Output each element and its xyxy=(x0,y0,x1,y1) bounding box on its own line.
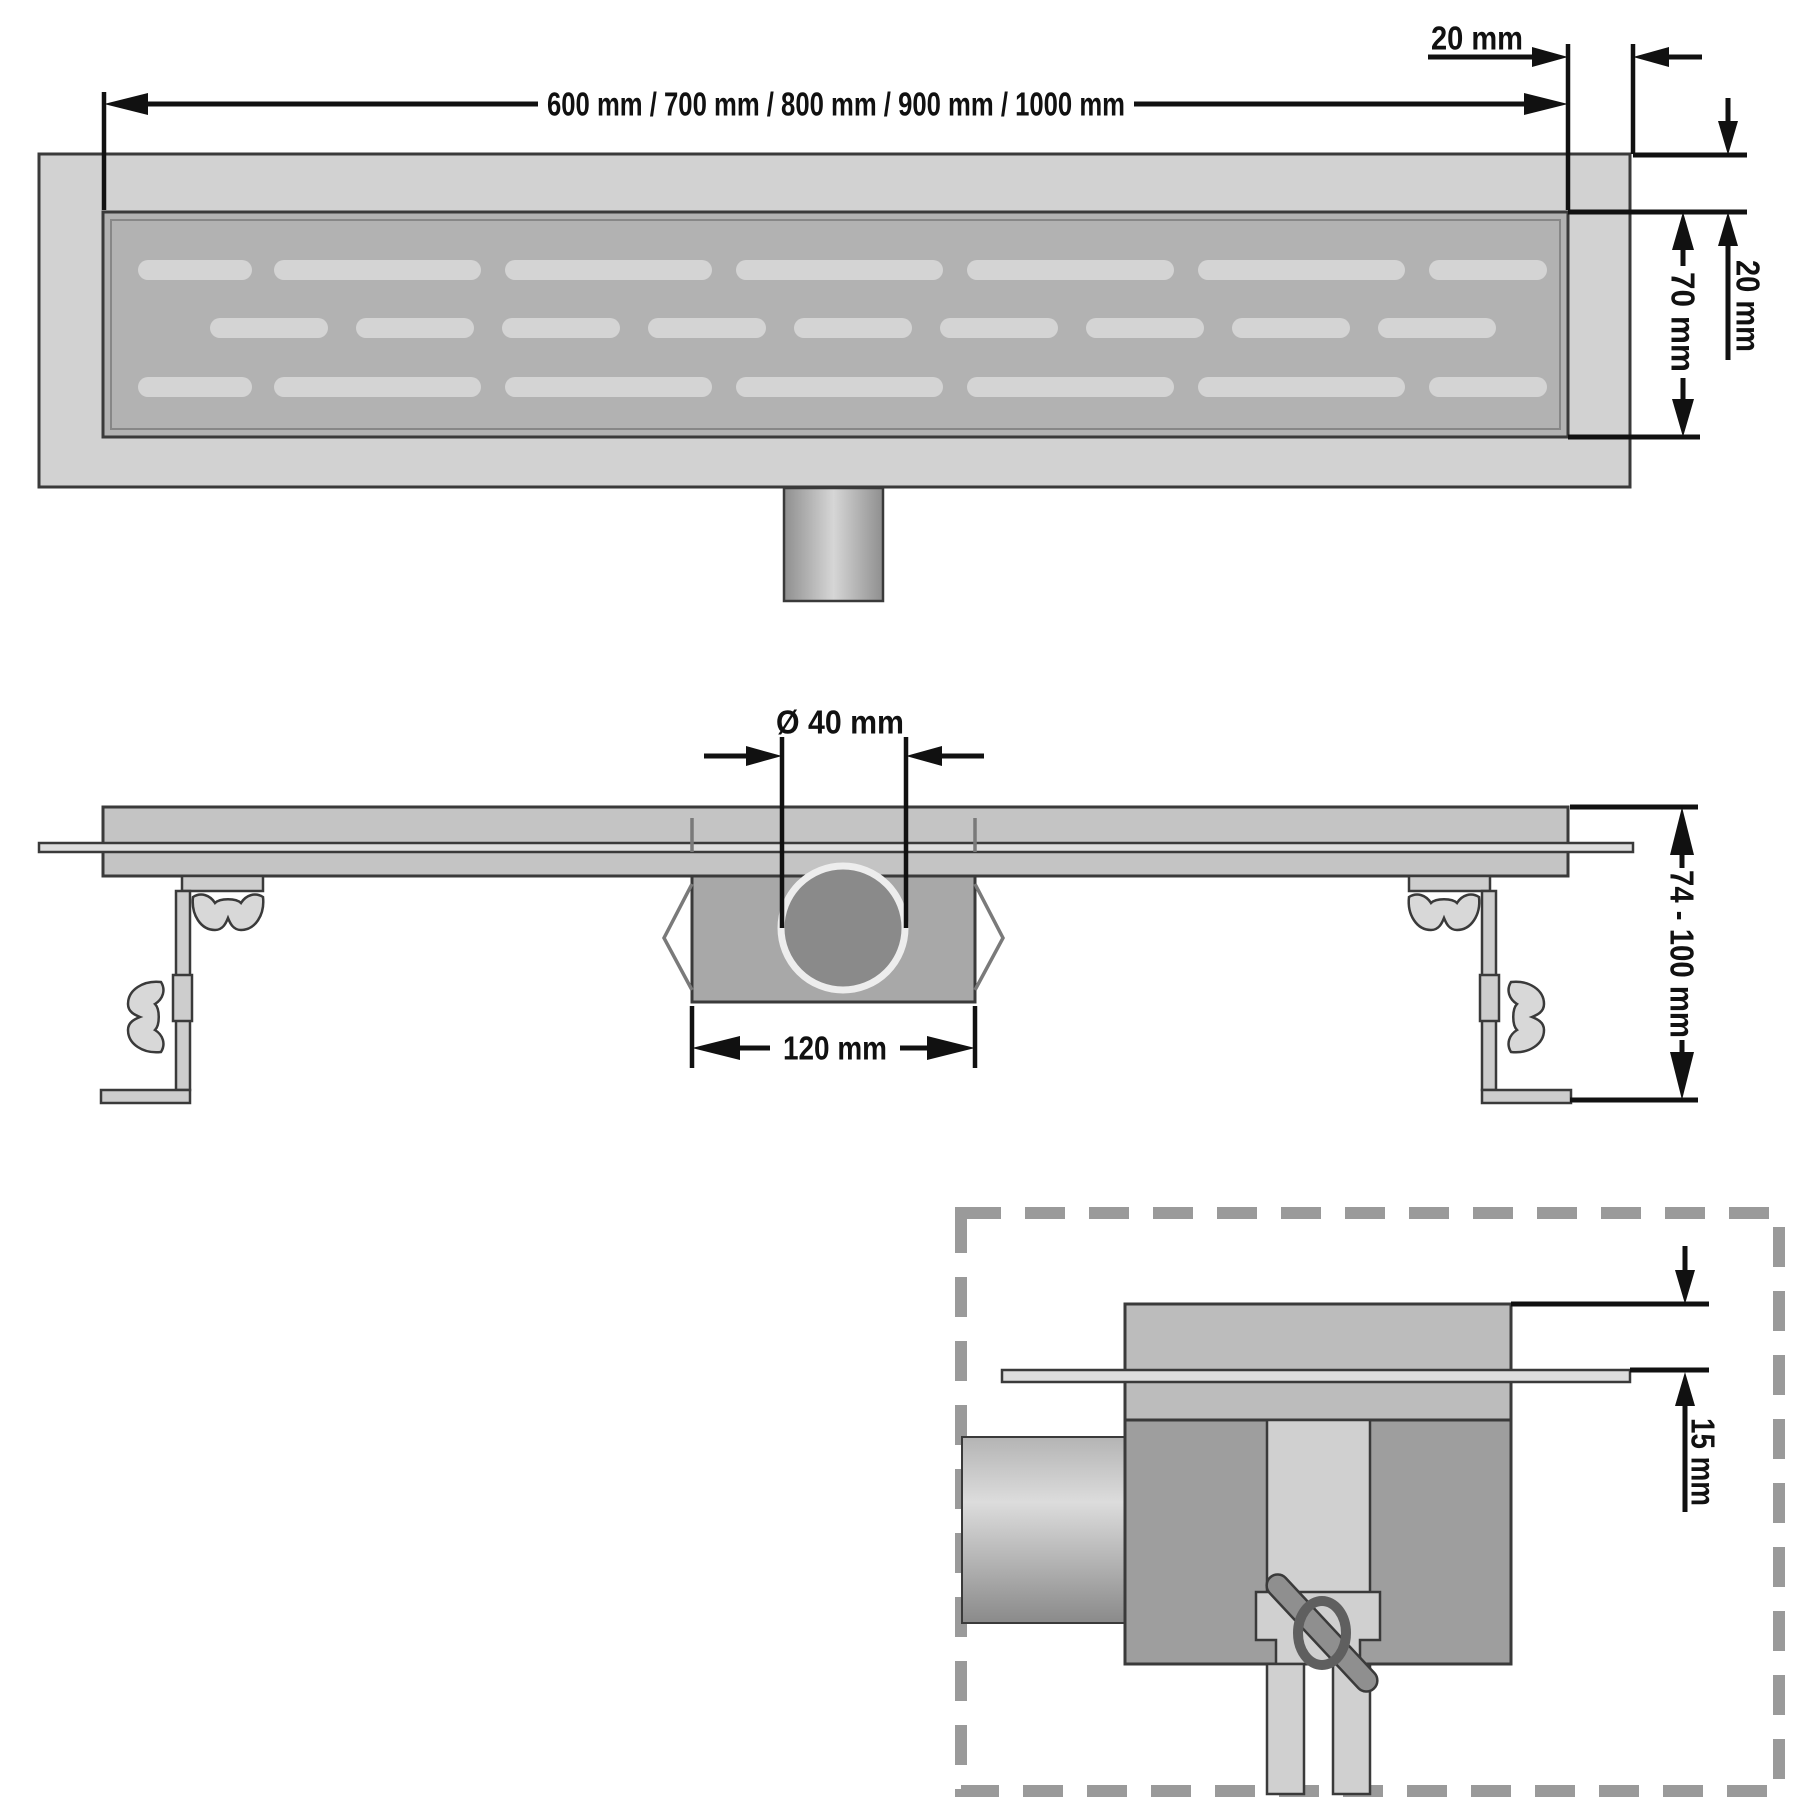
flange-reveal-arrow-up xyxy=(1675,1372,1695,1406)
grate-slot xyxy=(210,318,328,338)
grate-slot xyxy=(138,260,252,280)
bracket-slider-right xyxy=(1480,975,1499,1021)
trap-width-arrow-right xyxy=(927,1036,975,1060)
detail-outlet-pipe xyxy=(962,1437,1125,1623)
grate-slot xyxy=(356,318,474,338)
install-height-arrow-up xyxy=(1670,807,1694,855)
flange-reveal-arrow-down xyxy=(1675,1270,1695,1304)
grate-slot xyxy=(736,260,943,280)
grate-slot xyxy=(967,377,1174,397)
bracket-top-plate-left xyxy=(182,876,263,891)
trap-width-dimension: 120 mm xyxy=(692,1006,975,1068)
wing-nut-icon xyxy=(1409,895,1480,930)
detail-standpipe xyxy=(1267,1420,1370,1594)
side-edge-arrow-up xyxy=(1718,212,1738,246)
pipe-dia-arrow-right xyxy=(906,746,942,766)
mounting-bracket-right xyxy=(1409,876,1571,1103)
detail-view xyxy=(961,1213,1779,1794)
edge-arrow-right xyxy=(1633,47,1669,67)
grate-slot xyxy=(794,318,912,338)
grate-slot xyxy=(1198,377,1405,397)
grate-slot xyxy=(505,260,712,280)
grate-slot xyxy=(967,260,1174,280)
detail-standpipe-leg-left xyxy=(1267,1664,1304,1794)
length-label: 600 mm / 700 mm / 800 mm / 900 mm / 1000… xyxy=(547,86,1125,123)
flange-reveal-label: 15 mm xyxy=(1685,1418,1722,1506)
bracket-foot-right xyxy=(1482,1090,1571,1103)
grate-slot xyxy=(502,318,620,338)
wing-nut-icon xyxy=(1509,982,1544,1053)
side-edge-arrow-down xyxy=(1718,121,1738,155)
wing-nut-icon xyxy=(128,982,163,1053)
grate-slot xyxy=(1429,260,1547,280)
length-arrow-right xyxy=(1524,93,1568,115)
grate-slot xyxy=(1232,318,1350,338)
technical-drawing-page: 600 mm / 700 mm / 800 mm / 900 mm / 1000… xyxy=(0,0,1800,1800)
break-mark-left xyxy=(664,884,692,990)
detail-flange-plate xyxy=(1002,1370,1630,1382)
grate-slot xyxy=(274,260,481,280)
grate-width-arrow-down xyxy=(1672,399,1694,437)
grate-width-arrow-up xyxy=(1672,212,1694,250)
wing-nut-icon xyxy=(193,895,264,930)
edge-width-top-dimension: 20 mm xyxy=(1428,20,1702,155)
pipe-dia-arrow-left xyxy=(746,746,782,766)
grate-slot xyxy=(274,377,481,397)
edge-arrow-left xyxy=(1532,47,1568,67)
grate-slot xyxy=(940,318,1058,338)
drain-pipe-opening xyxy=(781,866,905,990)
grate-slot xyxy=(736,377,943,397)
bracket-slider-left xyxy=(173,975,192,1021)
installation-height-label: 74 - 100 mm xyxy=(1664,870,1701,1038)
edge-width-side-label: 20 mm xyxy=(1730,260,1767,352)
break-mark-right xyxy=(975,884,1003,990)
length-arrow-left xyxy=(104,93,148,115)
top-view xyxy=(39,154,1630,601)
detail-grate-block xyxy=(1125,1304,1511,1420)
grate-width-label: 70 mm xyxy=(1665,272,1702,372)
install-height-arrow-down xyxy=(1670,1052,1694,1100)
drain-outlet-pipe-top-view xyxy=(784,488,883,601)
grate-slot xyxy=(1378,318,1496,338)
drain-flange xyxy=(39,843,1633,852)
mounting-bracket-left xyxy=(101,876,263,1103)
grate-slot xyxy=(648,318,766,338)
edge-width-top-label: 20 mm xyxy=(1431,20,1523,57)
grate-slot xyxy=(1429,377,1547,397)
bracket-top-plate-right xyxy=(1409,876,1490,891)
grate-slot xyxy=(138,377,252,397)
shower-drain-technical-drawing: 600 mm / 700 mm / 800 mm / 900 mm / 1000… xyxy=(0,0,1800,1800)
grate-slot xyxy=(1198,260,1405,280)
grate-slot xyxy=(505,377,712,397)
pipe-diameter-label: Ø 40 mm xyxy=(776,704,904,741)
grate-slot xyxy=(1086,318,1204,338)
bracket-foot-left xyxy=(101,1090,190,1103)
trap-width-arrow-left xyxy=(692,1036,740,1060)
trap-width-label: 120 mm xyxy=(783,1030,887,1067)
